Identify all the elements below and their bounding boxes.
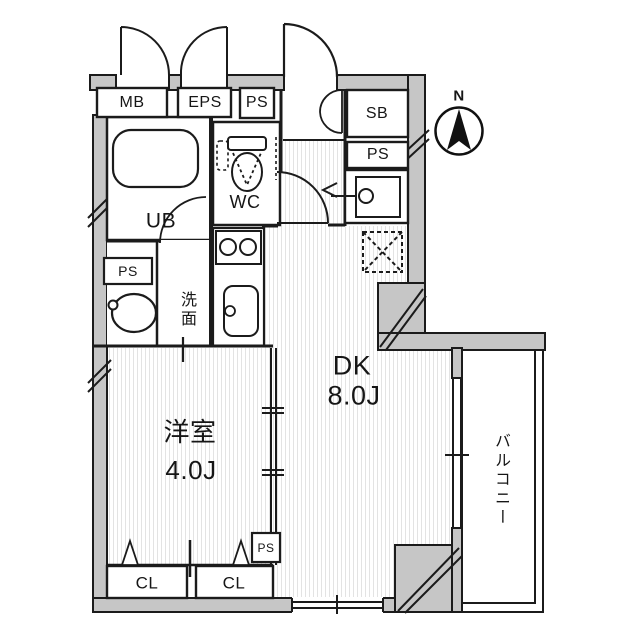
stove: [216, 231, 261, 264]
ps-washroom-label: PS: [118, 264, 138, 278]
ps-top-label: PS: [246, 95, 268, 111]
mb-door: [121, 27, 169, 75]
shoebox-double-door: [320, 90, 342, 133]
washbasin-faucet: [109, 301, 118, 310]
washroom-label: 洗面: [178, 291, 194, 329]
stove-burner-right: [240, 239, 256, 255]
stove-burner-left: [220, 239, 236, 255]
right-wall: [408, 75, 425, 290]
floorplan-drawing: [0, 0, 640, 640]
mb-label: MB: [120, 95, 145, 111]
dk-name-label: DK: [333, 353, 372, 380]
western-room-size-label: 4.0J: [165, 457, 216, 483]
kitchen-sink: [224, 286, 258, 336]
toilet-tank: [228, 137, 266, 150]
ps-bottom-label: PS: [257, 542, 274, 554]
toilet-bowl: [232, 153, 262, 191]
compass: [436, 108, 483, 155]
left-wall: [93, 115, 107, 612]
dk-size-label: 8.0J: [327, 383, 380, 410]
balcony-side-wall-high: [452, 348, 462, 378]
bathtub: [113, 130, 198, 187]
north-label: N: [453, 89, 464, 104]
balcony-label: バルコニー: [492, 433, 508, 528]
cl-right-label: CL: [223, 575, 246, 592]
eps-label: EPS: [188, 95, 222, 111]
floorplan: N MB EPS PS SB PS WC UB PS 洗面 DK 8.0J 洋室…: [0, 0, 640, 640]
western-room-name-label: 洋室: [163, 419, 216, 445]
unit-bath-label: UB: [146, 211, 176, 232]
eps-door: [181, 27, 227, 75]
sink-faucet: [225, 306, 235, 316]
sb-label: SB: [366, 106, 388, 122]
washbasin-bowl: [112, 294, 156, 332]
bottom-wall-left: [93, 598, 292, 612]
compass-needle: [447, 109, 471, 150]
cl-left-label: CL: [136, 575, 159, 592]
washer-drain: [359, 189, 373, 203]
balcony-side-wall-low: [452, 528, 462, 612]
entrance-door: [284, 24, 337, 77]
ps-right-label: PS: [367, 147, 389, 163]
wc-label: WC: [230, 193, 261, 211]
